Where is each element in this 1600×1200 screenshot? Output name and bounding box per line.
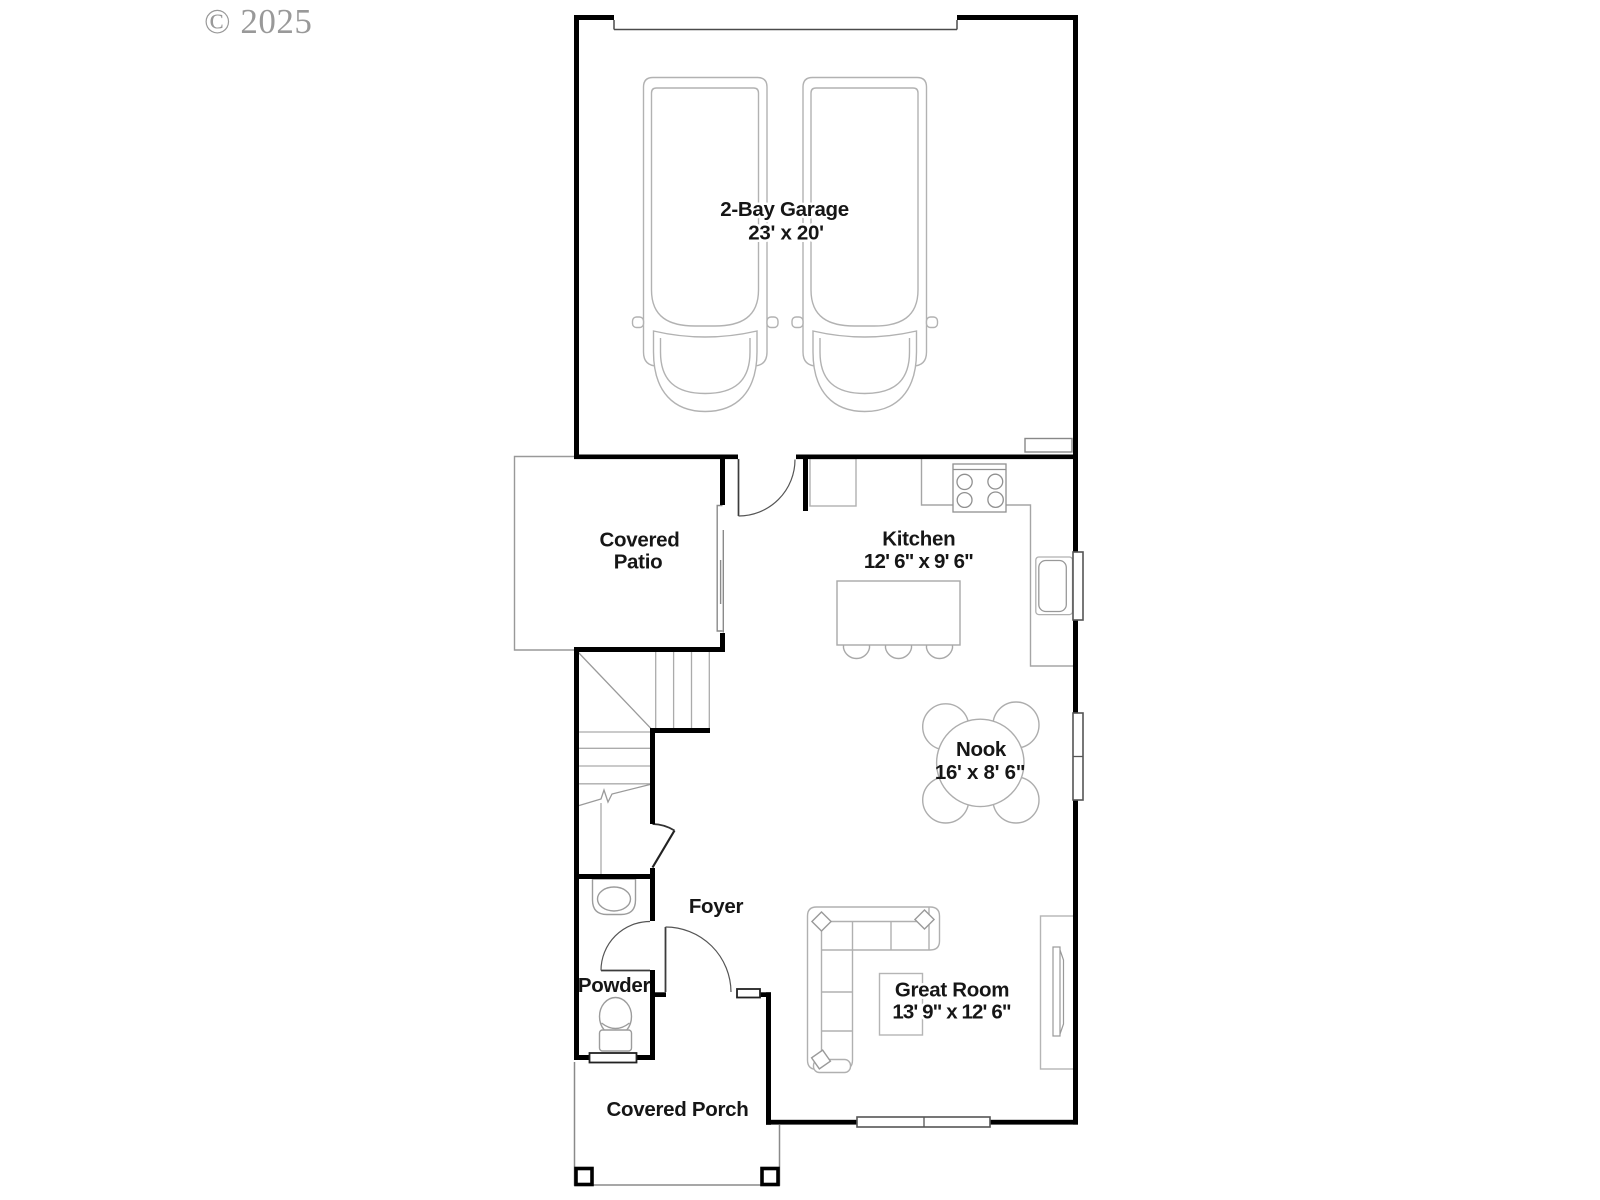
svg-text:12' 6" x 9' 6": 12' 6" x 9' 6" [864, 550, 973, 573]
svg-text:2-Bay Garage: 2-Bay Garage [720, 198, 849, 221]
svg-text:Foyer: Foyer [689, 895, 744, 918]
svg-text:23' x 20': 23' x 20' [748, 222, 823, 245]
svg-text:© 2025: © 2025 [204, 2, 312, 41]
svg-text:Powder: Powder [578, 974, 651, 997]
svg-text:Covered Porch: Covered Porch [607, 1098, 749, 1121]
svg-text:Covered: Covered [600, 529, 680, 552]
svg-text:Kitchen: Kitchen [882, 528, 955, 551]
svg-text:13' 9" x 12' 6": 13' 9" x 12' 6" [892, 1001, 1010, 1024]
svg-text:Patio: Patio [614, 551, 663, 574]
svg-text:Great Room: Great Room [895, 979, 1009, 1002]
svg-text:16' x 8' 6": 16' x 8' 6" [935, 761, 1025, 784]
svg-text:Nook: Nook [956, 738, 1007, 761]
